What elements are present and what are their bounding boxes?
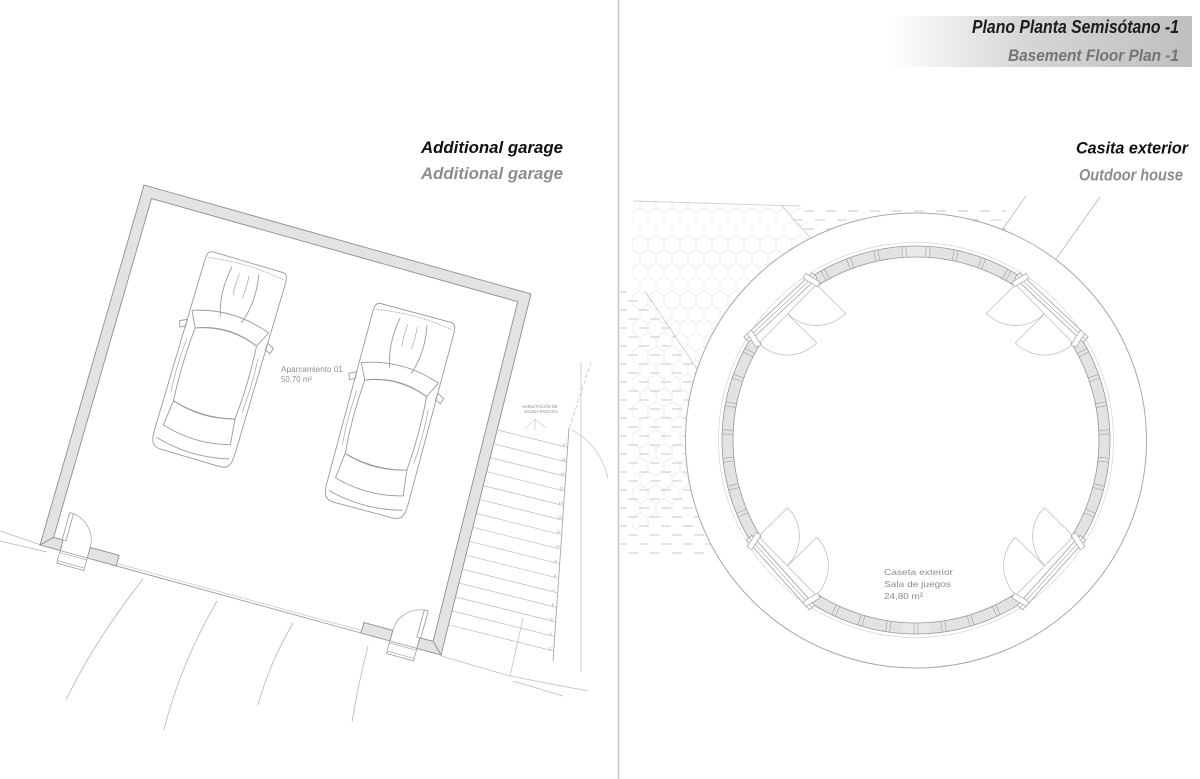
svg-text:17: 17 bbox=[563, 443, 567, 447]
svg-text:13: 13 bbox=[559, 501, 563, 505]
svg-text:16: 16 bbox=[562, 458, 566, 462]
svg-text:Plano Planta Semisótano -1: Plano Planta Semisótano -1 bbox=[972, 16, 1179, 37]
svg-text:4: 4 bbox=[550, 632, 552, 636]
svg-text:50,70 m²: 50,70 m² bbox=[281, 375, 312, 384]
svg-text:SALIDA RODADA: SALIDA RODADA bbox=[524, 409, 558, 414]
svg-text:Additional garage: Additional garage bbox=[420, 164, 563, 183]
svg-text:6: 6 bbox=[552, 603, 554, 607]
svg-text:9: 9 bbox=[555, 559, 557, 563]
svg-text:14: 14 bbox=[560, 487, 564, 491]
svg-text:12: 12 bbox=[558, 516, 562, 520]
svg-text:15: 15 bbox=[561, 472, 565, 476]
svg-text:7: 7 bbox=[553, 588, 555, 592]
svg-text:Sala de juegos: Sala de juegos bbox=[884, 579, 951, 589]
svg-text:8: 8 bbox=[554, 574, 556, 578]
svg-text:5: 5 bbox=[551, 617, 553, 621]
svg-text:11: 11 bbox=[557, 530, 561, 534]
svg-text:10: 10 bbox=[556, 545, 560, 549]
svg-text:Additional garage: Additional garage bbox=[420, 138, 563, 157]
svg-text:Basement Floor Plan -1: Basement Floor Plan -1 bbox=[1008, 47, 1179, 65]
svg-text:3: 3 bbox=[549, 647, 551, 651]
svg-text:Aparcamiento 01: Aparcamiento 01 bbox=[281, 365, 343, 374]
svg-text:Casita exterior: Casita exterior bbox=[1076, 139, 1189, 158]
svg-text:24,80 m²: 24,80 m² bbox=[884, 591, 923, 601]
svg-text:Caseta exterior: Caseta exterior bbox=[884, 567, 953, 577]
svg-text:Outdoor house: Outdoor house bbox=[1079, 166, 1183, 185]
